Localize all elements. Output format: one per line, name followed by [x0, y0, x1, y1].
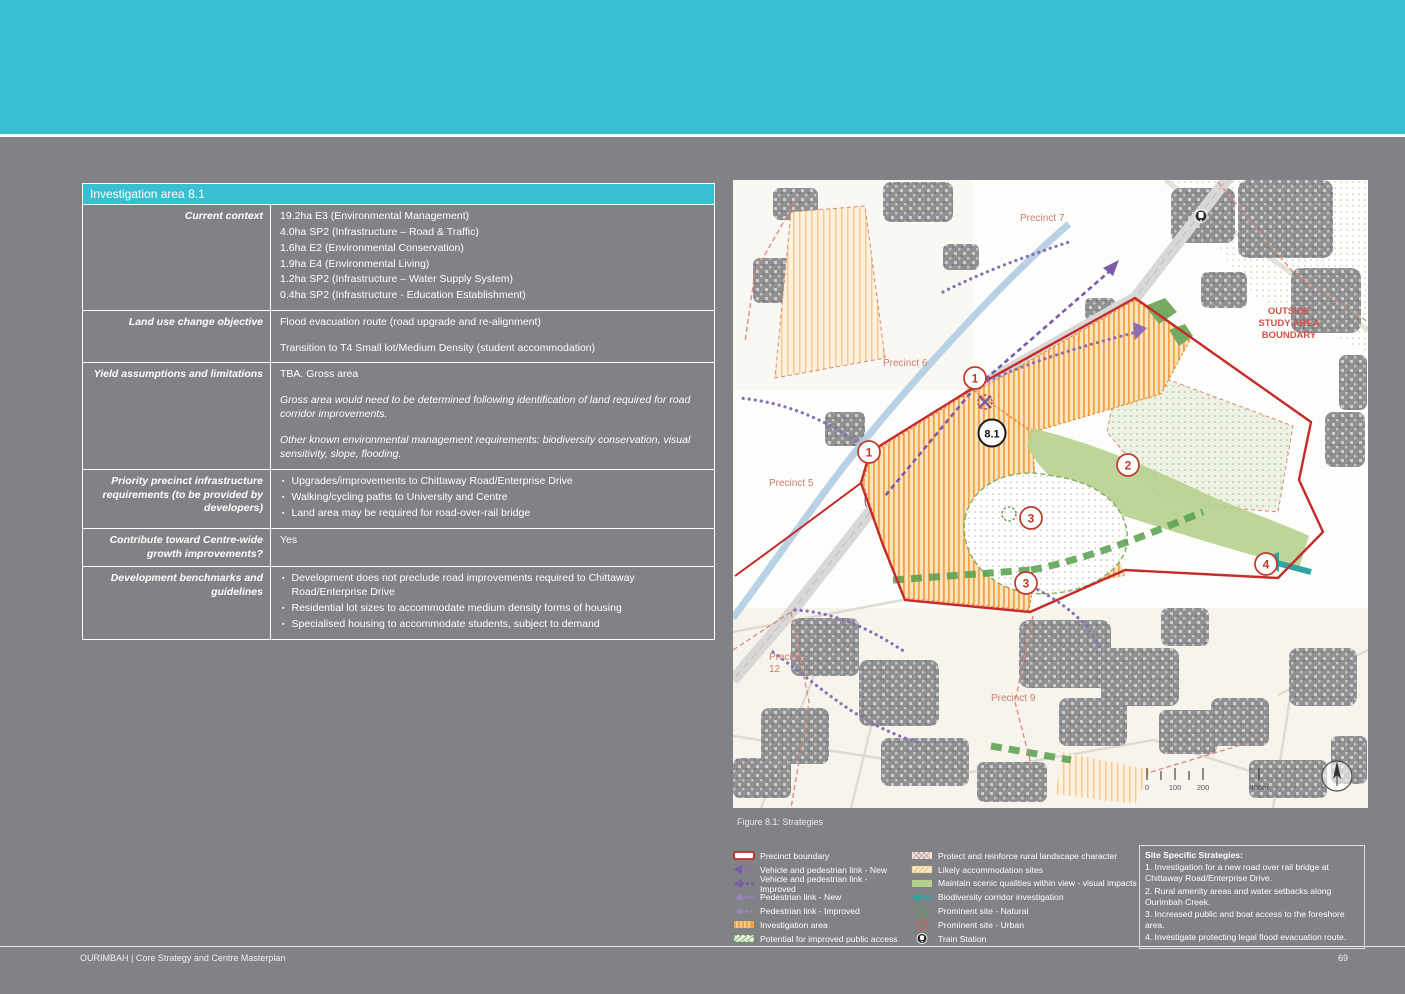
table-row: Land use change objective Flood evacuati…: [83, 310, 714, 362]
page-number: 69: [1338, 953, 1348, 963]
legend-item: Investigation area: [733, 918, 905, 932]
row-label: Yield assumptions and limitations: [83, 363, 271, 469]
legend-item: Potential for improved public access: [733, 932, 905, 946]
vehicle-pedestrian-link-new-icon: [733, 864, 755, 875]
marker-1a: 1: [964, 367, 986, 389]
rural-landscape-icon: [911, 850, 933, 861]
marker-2: 2: [1117, 454, 1139, 476]
row-value: TBA. Gross area Gross area would need to…: [271, 363, 714, 469]
strategy-item: 2. Rural amenity areas and water setback…: [1145, 886, 1359, 908]
svg-text:100: 100: [1169, 783, 1182, 792]
marker-4: 4: [1255, 553, 1277, 575]
biodiversity-corridor-icon: [911, 892, 933, 903]
strategies-map: 1 1 2 3 3 4 8.1 Precinct 7 Precinct 6 Pr…: [733, 180, 1368, 808]
pedestrian-link-new-icon: [733, 892, 755, 903]
label-precinct-5: Precinct 5: [769, 478, 814, 489]
train-station-icon: [911, 933, 933, 944]
accommodation-sites-icon: [911, 864, 933, 875]
marker-1b: 1: [858, 441, 880, 463]
svg-text:1: 1: [866, 446, 873, 460]
vehicle-pedestrian-link-improved-icon: [733, 878, 755, 889]
table-title: Investigation area 8.1: [83, 184, 714, 204]
strategy-item: 1. Investigation for a new road over rai…: [1145, 862, 1359, 884]
investigation-area-icon: [733, 919, 755, 930]
svg-text:4: 4: [1263, 558, 1270, 572]
row-value: Development does not preclude road impro…: [271, 567, 714, 639]
label-precinct-12-line1: Precinct: [769, 652, 805, 663]
strategy-item: 3. Increased public and boat access to t…: [1145, 909, 1359, 931]
legend-item: Train Station: [911, 932, 1139, 946]
svg-text:400m: 400m: [1250, 783, 1269, 792]
svg-text:STUDY AREA: STUDY AREA: [1258, 318, 1319, 329]
site-specific-strategies-box: Site Specific Strategies: 1. Investigati…: [1139, 845, 1365, 949]
legend-item: Likely accommodation sites: [911, 863, 1139, 877]
svg-text:200: 200: [1197, 783, 1210, 792]
table-row: Current context 19.2ha E3 (Environmental…: [83, 204, 714, 310]
strategy-item: 4. Investigate protecting legal flood ev…: [1145, 932, 1359, 943]
label-precinct-6: Precinct 6: [883, 358, 928, 369]
svg-text:OUTSIDE: OUTSIDE: [1268, 306, 1310, 317]
prominent-site-natural-icon: [911, 906, 933, 917]
legend-item: Prominent site - Urban: [911, 918, 1139, 932]
row-value: 19.2ha E3 (Environmental Management) 4.0…: [271, 205, 714, 310]
svg-text:1: 1: [972, 372, 979, 386]
svg-text:2: 2: [1125, 459, 1132, 473]
precinct-boundary-icon: [733, 850, 755, 861]
footer-document-title: OURIMBAH | Core Strategy and Centre Mast…: [80, 953, 285, 963]
legend-item: Prominent site - Natural: [911, 904, 1139, 918]
map-caption: Figure 8.1: Strategies: [737, 817, 823, 827]
strategies-title: Site Specific Strategies:: [1145, 850, 1359, 861]
marker-3a: 3: [1020, 507, 1042, 529]
north-arrow-icon: [1322, 761, 1352, 791]
table-row: Yield assumptions and limitations TBA. G…: [83, 362, 714, 469]
legend-item: Maintain scenic qualities within view - …: [911, 877, 1139, 891]
top-accent-band: [0, 0, 1405, 137]
label-precinct-9: Precinct 9: [991, 693, 1036, 704]
svg-text:3: 3: [1028, 512, 1035, 526]
table-row: Priority precinct infrastructure require…: [83, 469, 714, 528]
row-label: Priority precinct infrastructure require…: [83, 470, 271, 528]
row-value: Yes: [271, 529, 714, 566]
row-value: Flood evacuation route (road upgrade and…: [271, 311, 714, 362]
legend-item: Pedestrian link - Improved: [733, 904, 905, 918]
label-precinct-7: Precinct 7: [1020, 213, 1065, 224]
legend-item: Biodiversity corridor investigation: [911, 890, 1139, 904]
investigation-area-table: Investigation area 8.1 Current context 1…: [82, 183, 715, 640]
svg-text:0: 0: [1145, 783, 1149, 792]
footer-divider: [0, 946, 1405, 947]
pedestrian-link-improved-icon: [733, 906, 755, 917]
row-label: Current context: [83, 205, 271, 310]
row-value: Upgrades/improvements to Chittaway Road/…: [271, 470, 714, 528]
svg-text:BOUNDARY: BOUNDARY: [1262, 330, 1317, 341]
prominent-site-urban-icon: [911, 919, 933, 930]
legend-item: Protect and reinforce rural landscape ch…: [911, 849, 1139, 863]
train-station-symbol: [1195, 210, 1207, 222]
legend-item: Vehicle and pedestrian link - Improved: [733, 877, 905, 891]
svg-text:3: 3: [1023, 577, 1030, 591]
improved-public-access-icon: [733, 933, 755, 944]
svg-text:8.1: 8.1: [984, 429, 999, 441]
marker-3b: 3: [1015, 572, 1037, 594]
row-label: Land use change objective: [83, 311, 271, 362]
scenic-quality-icon: [911, 878, 933, 889]
label-precinct-12-line2: 12: [769, 664, 781, 675]
row-label: Development benchmarks and guidelines: [83, 567, 271, 639]
area-id-badge: 8.1: [979, 420, 1006, 447]
row-label: Contribute toward Centre-wide growth imp…: [83, 529, 271, 566]
table-row: Contribute toward Centre-wide growth imp…: [83, 528, 714, 566]
table-row: Development benchmarks and guidelines De…: [83, 566, 714, 639]
legend-item: Precinct boundary: [733, 849, 905, 863]
